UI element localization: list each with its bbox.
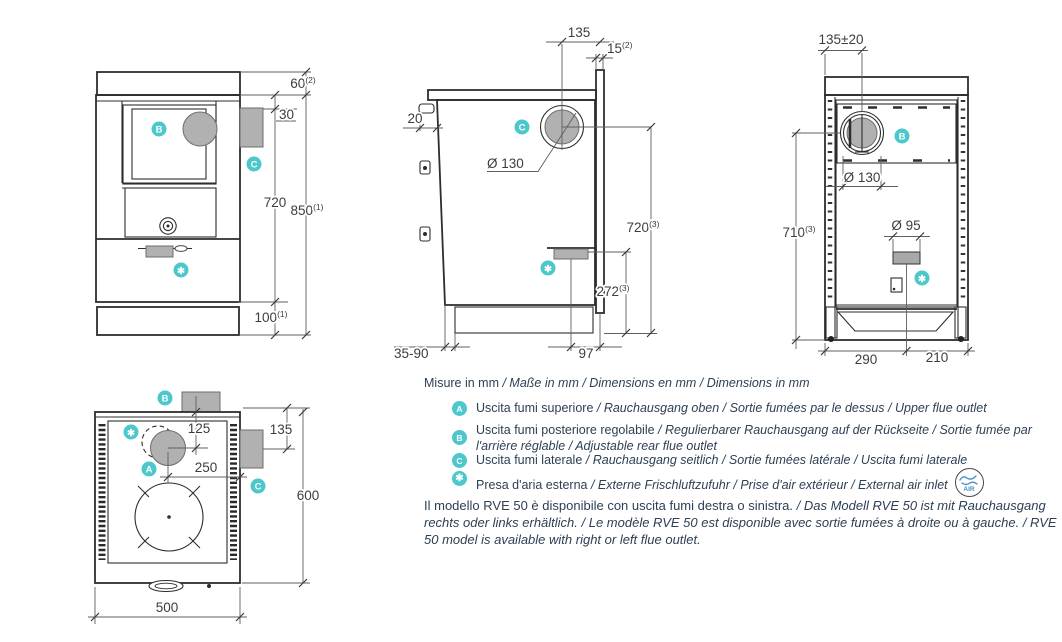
marker-b-rear: B [895,129,910,144]
units-note: Misure in mm / Maße in mm / Dimensions e… [424,376,1044,390]
dim-side-35-90: 35-90 [394,346,429,361]
dim-front-100: 100(1) [255,309,288,325]
units-translations: / Maße in mm / Dimensions en mm / Dimens… [499,376,810,390]
legend-badge-c: C [452,453,467,468]
dim-rear-710: 710(3) [783,224,816,240]
dim-side-135: 135 [568,25,591,40]
dim-top-125: 125 [188,421,211,436]
dim-top-250: 250 [195,460,218,475]
dim-side-15: 15(2) [607,40,633,56]
hotplate [135,483,203,551]
marker-c-front: C [247,157,262,172]
rear-flue-box-top [182,392,220,412]
legend-text-a: Uscita fumi superiore / Rauchausgang obe… [476,401,987,417]
small-opening [891,278,902,292]
front-view: 60(2) 30 720 850(1) 100(1) B C ✱ [96,68,324,339]
marker-c-top: C [251,479,266,494]
legend-item-rear-flue: B Uscita fumi posteriore regolabile / Re… [452,423,1050,454]
dim-side-d130: Ø 130 [487,156,524,171]
dim-rear-135: 135±20 [819,32,864,47]
legend-item-side-flue: C Uscita fumi laterale / Rauchausgang se… [452,453,1050,469]
marker-air-front: ✱ [174,263,189,278]
legend-item-upper-flue: A Uscita fumi superiore / Rauchausgang o… [452,401,1050,417]
svg-text:B: B [162,394,169,405]
svg-text:AIR: AIR [964,486,976,493]
svg-text:✱: ✱ [544,264,553,275]
rear-panel [596,70,604,313]
svg-text:✱: ✱ [177,266,186,277]
svg-text:C: C [251,160,258,171]
svg-text:C: C [519,123,526,134]
side-flue-box [240,108,263,147]
legend-text-b: Uscita fumi posteriore regolabile / Regu… [476,423,1050,454]
door-hinges [420,161,430,241]
svg-text:B: B [899,132,906,143]
dim-rear-290: 290 [855,352,878,367]
dim-front-60: 60(2) [290,75,316,91]
air-control-knob [160,218,176,234]
cooktop-slab [428,90,596,100]
flue-knockout-circle [183,112,217,146]
marker-b-front: B [152,122,167,137]
air-inlet-box-rear [893,252,920,264]
legend-text-c: Uscita fumi laterale / Rauchausgang seit… [476,453,967,469]
legend-item-air-inlet: ✱ Presa d'aria esterna / Externe Frischl… [452,471,1050,500]
ash-pan [838,312,953,331]
dim-top-135: 135 [270,422,293,437]
dim-top-600: 600 [297,488,320,503]
cooktop-strip-rear [825,77,968,95]
svg-text:✱: ✱ [127,428,136,439]
base-recess [455,307,593,333]
stove-body [96,95,240,302]
marker-air-top: ✱ [124,425,139,440]
external-air-logo-icon: AIR [955,468,984,497]
svg-text:✱: ✱ [918,274,927,285]
marker-c-side: C [515,120,530,135]
marker-air-rear: ✱ [915,271,930,286]
dim-front-30: 30 [279,107,294,122]
availability-note: Il modello RVE 50 è disponibile con usci… [424,497,1058,548]
legend-badge-air: ✱ [452,471,467,486]
dim-side-720: 720(3) [627,219,660,235]
dim-rear-210: 210 [926,350,949,365]
side-view: 135 15(2) 20 Ø 130 720(3) 272(3) 35-90 9… [394,25,660,361]
dim-side-97: 97 [578,346,593,361]
legend-text-air: Presa d'aria esterna / Externe Frischluf… [476,471,984,500]
rear-view: 135±20 Ø 130 Ø 95 710(3) 290 210 B ✱ [783,32,975,367]
cooktop-strip [97,72,240,95]
drawer-handle [138,246,192,257]
base-plinth [97,307,239,335]
dim-front-720: 720 [264,195,287,210]
legend-badge-a: A [452,401,467,416]
marker-b-top: B [158,391,173,406]
marker-air-side: ✱ [541,261,556,276]
dim-rear-d130: Ø 130 [844,170,881,185]
rear-flue-circle [841,112,884,155]
svg-text:C: C [255,482,262,493]
air-inlet-box-side [547,248,596,259]
dim-side-20: 20 [407,111,422,126]
top-view: 125 135 250 600 500 B ✱ A C [88,391,319,625]
dim-side-272: 272(3) [597,283,630,299]
marker-a-top: A [142,462,157,477]
svg-text:B: B [156,125,163,136]
footer-primary: Il modello RVE 50 è disponibile con usci… [424,498,793,513]
dim-top-500: 500 [156,600,179,615]
side-flue-box-top [240,430,263,468]
dim-rear-d95: Ø 95 [891,218,920,233]
svg-text:A: A [146,465,153,476]
units-primary: Misure in mm [424,376,499,390]
dimension-drawing-page: 60(2) 30 720 850(1) 100(1) B C ✱ [0,0,1062,642]
dim-front-850: 850(1) [291,202,324,218]
legend-badge-b: B [452,430,467,445]
